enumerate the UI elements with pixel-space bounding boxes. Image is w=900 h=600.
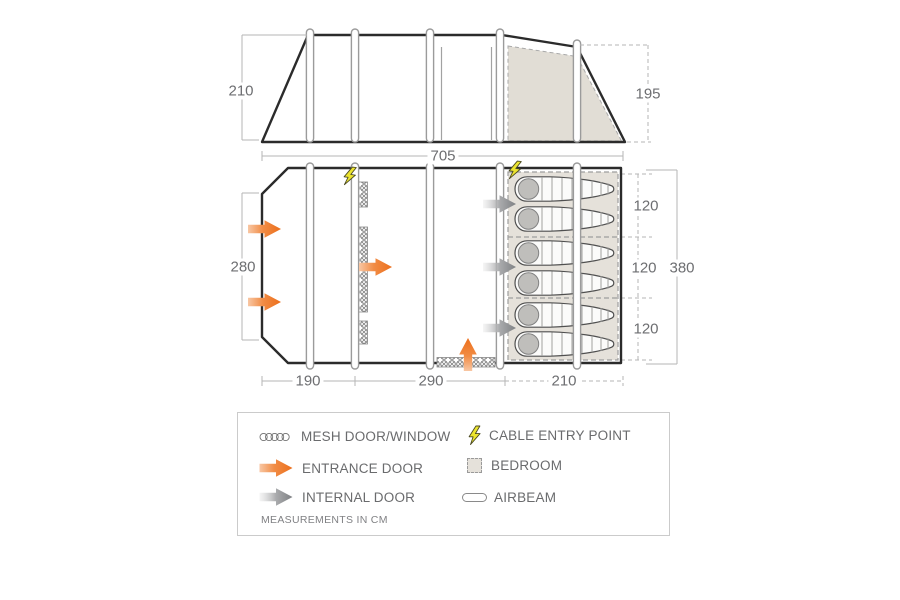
- legend-item-cable: CABLE ENTRY POINT: [467, 425, 631, 446]
- bedroom-area: [508, 172, 618, 360]
- legend-label-internal: INTERNAL DOOR: [302, 490, 415, 505]
- bedroom-icon: [467, 458, 482, 473]
- legend-label-mesh: MESH DOOR/WINDOW: [301, 429, 450, 444]
- legend-label-cable: CABLE ENTRY POINT: [489, 428, 631, 443]
- floor-plan: [248, 160, 621, 371]
- dim-bedroom-section: 120: [628, 260, 659, 277]
- legend-box: MESH DOOR/WINDOW CABLE ENTRY POINT ENTRA…: [237, 412, 670, 536]
- internal-door-icon: [259, 488, 293, 506]
- dim-bottom-living: 290: [415, 373, 446, 390]
- legend-label-airbeam: AIRBEAM: [494, 490, 556, 505]
- airbeam: [426, 29, 433, 142]
- mesh-icon: [259, 431, 290, 443]
- legend-item-bedroom: BEDROOM: [467, 458, 562, 473]
- legend-item-internal: INTERNAL DOOR: [259, 488, 415, 506]
- cable-entry-icon: [467, 425, 482, 446]
- airbeam: [426, 163, 433, 369]
- airbeam: [306, 163, 313, 369]
- airbeam: [351, 29, 358, 142]
- airbeam: [496, 29, 503, 142]
- legend-note: MEASUREMENTS IN CM: [261, 514, 388, 526]
- airbeam: [306, 29, 313, 142]
- dim-front-width: 280: [227, 259, 258, 276]
- tent-floorplan-diagram: 705 210 195 280 120 120 380 120 190 290 …: [0, 0, 900, 600]
- airbeam: [351, 163, 358, 369]
- mesh-window: [358, 321, 368, 344]
- legend-label-entrance: ENTRANCE DOOR: [302, 461, 423, 476]
- dim-bottom-bedroom: 210: [548, 373, 579, 390]
- dim-bedroom-total: 380: [666, 260, 697, 277]
- dim-rear-height: 195: [632, 86, 663, 103]
- legend-item-mesh: MESH DOOR/WINDOW: [259, 429, 450, 444]
- dim-bedroom-section: 120: [630, 321, 661, 338]
- mesh-window: [358, 182, 368, 207]
- elevation-view: [262, 29, 625, 142]
- legend-item-airbeam: AIRBEAM: [462, 490, 556, 505]
- elevation-bedroom-panel: [508, 46, 622, 141]
- airbeam-icon: [462, 493, 487, 502]
- entrance-door-icon: [259, 459, 293, 477]
- legend-label-bedroom: BEDROOM: [491, 458, 562, 473]
- dim-total-length: 705: [427, 148, 458, 165]
- airbeam: [573, 40, 580, 142]
- legend-item-entrance: ENTRANCE DOOR: [259, 459, 423, 477]
- dim-bedroom-section: 120: [630, 198, 661, 215]
- dim-side-height: 210: [225, 83, 256, 100]
- dim-bottom-porch: 190: [292, 373, 323, 390]
- airbeam: [573, 163, 580, 369]
